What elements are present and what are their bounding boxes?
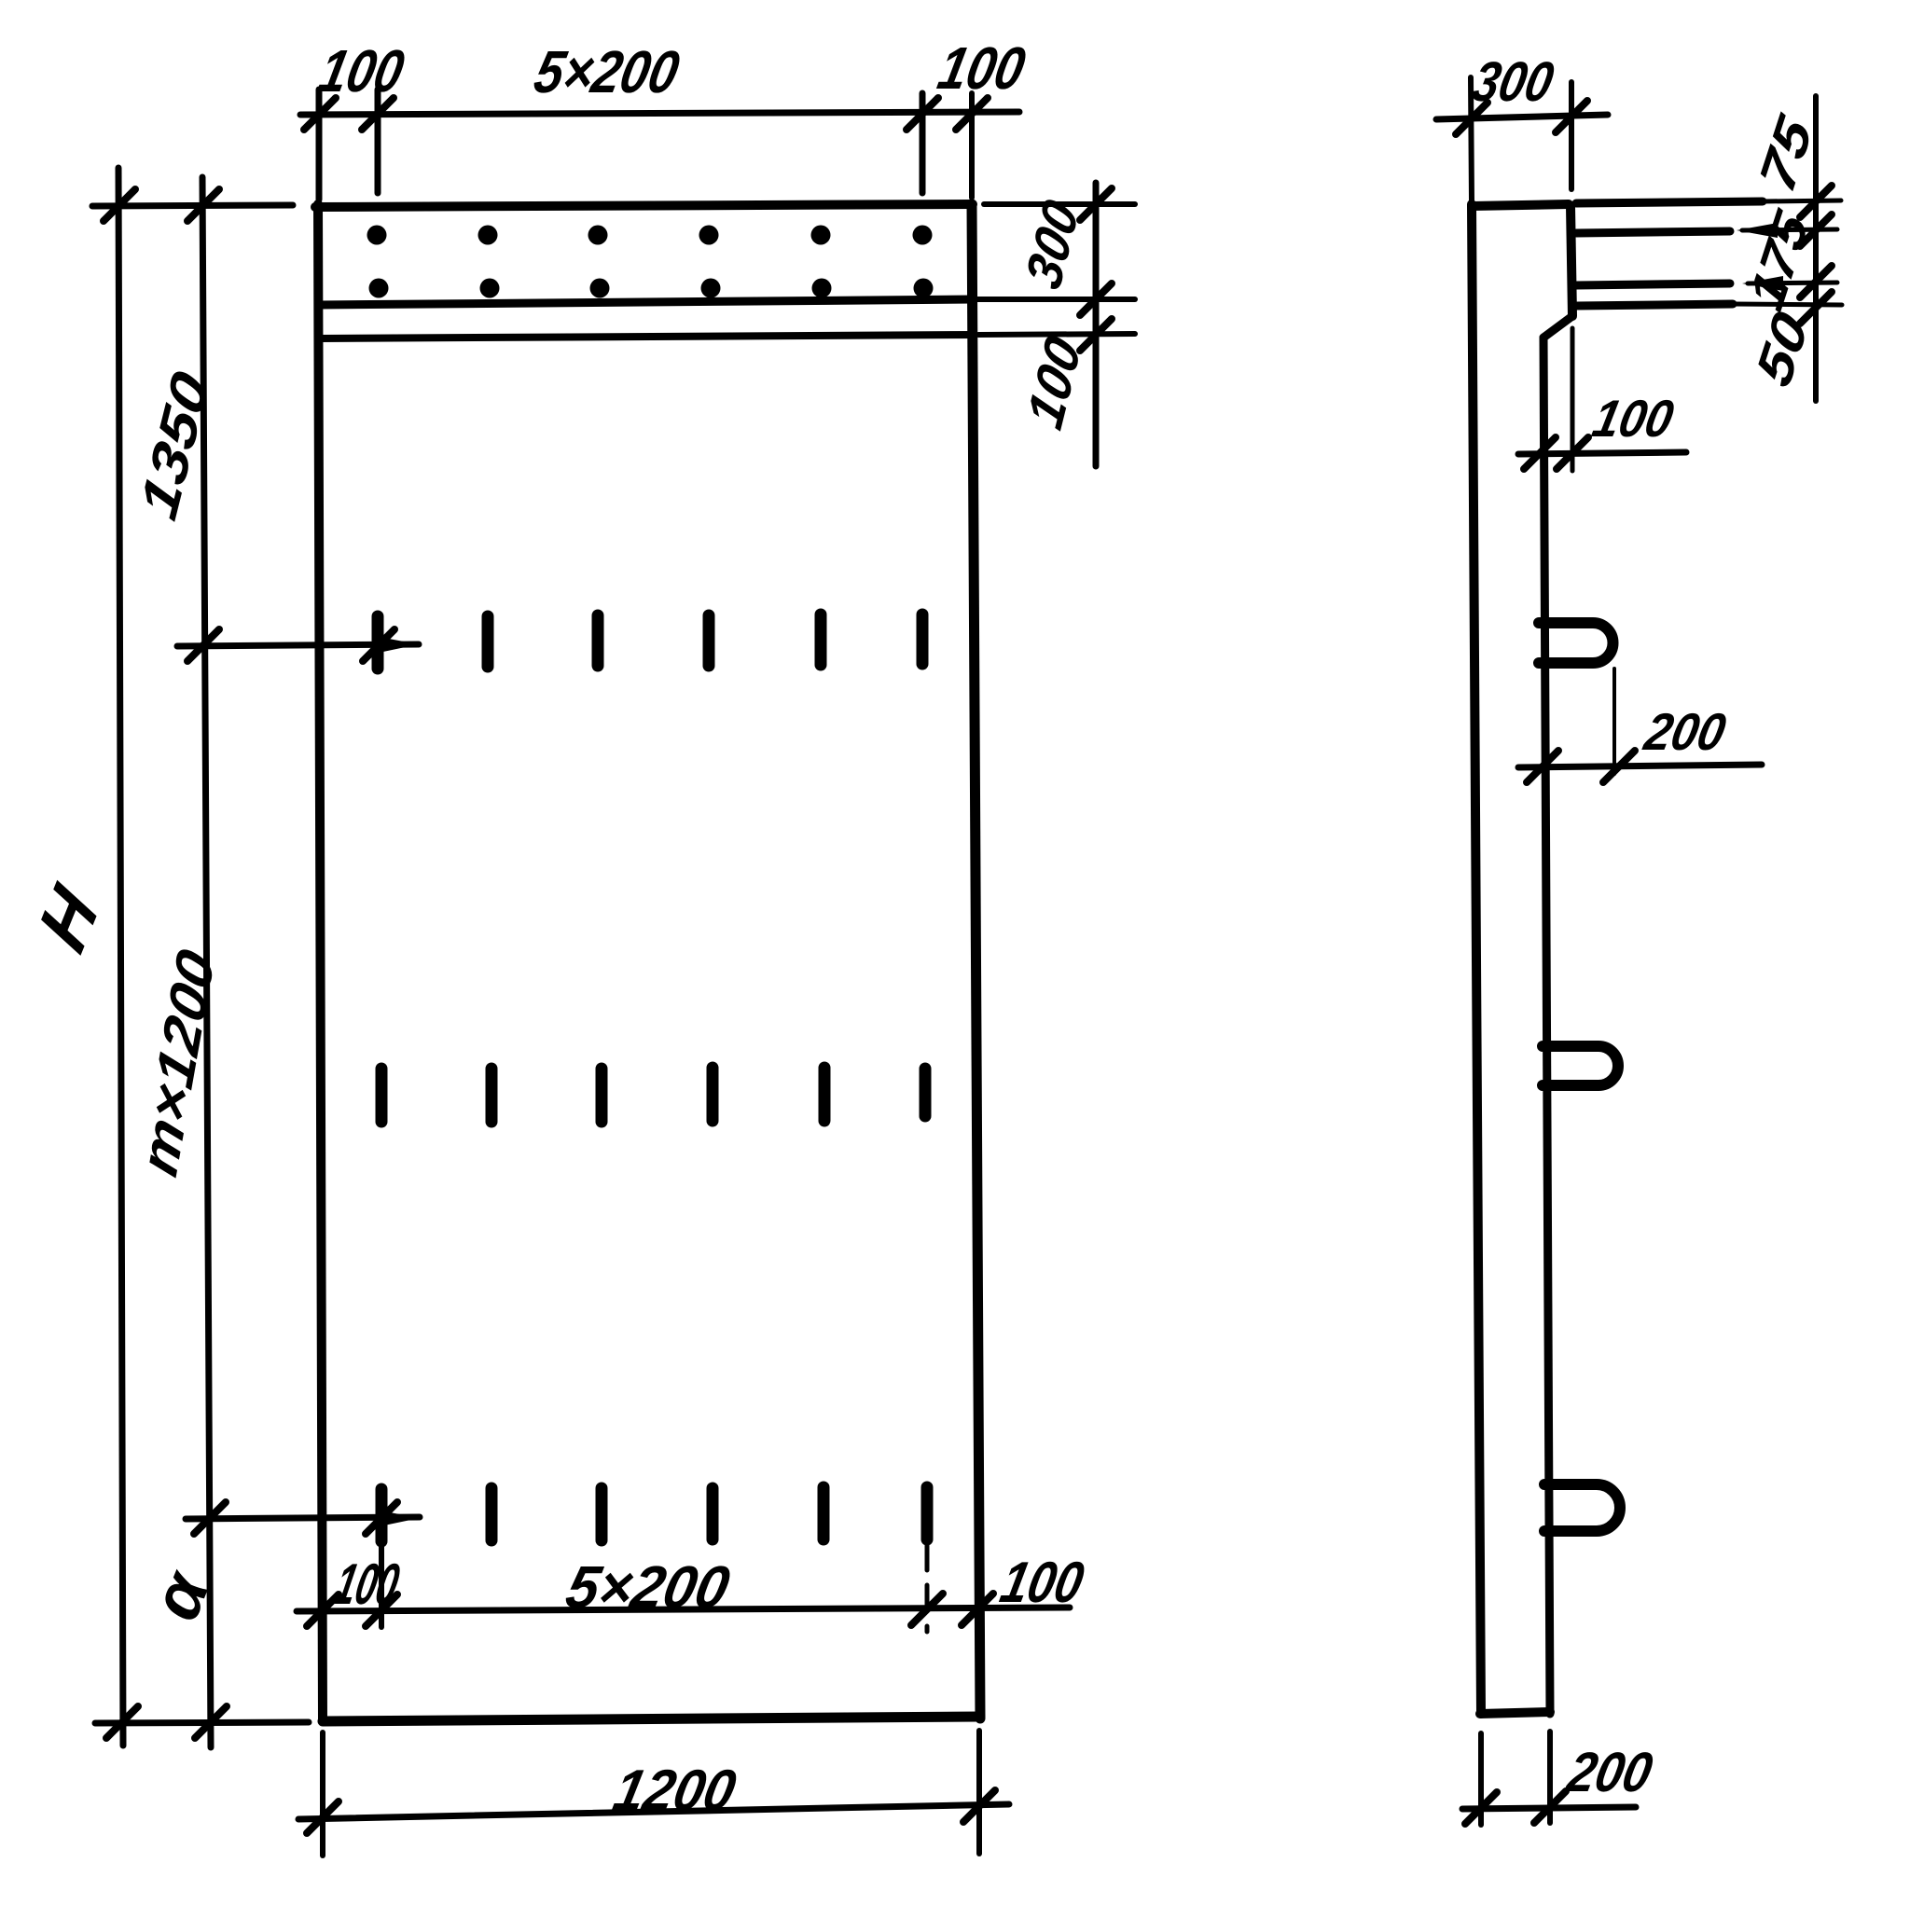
svg-text:100: 100 xyxy=(313,37,409,104)
svg-text:200: 200 xyxy=(1561,1741,1657,1803)
svg-text:100: 100 xyxy=(933,34,1031,102)
svg-text:300: 300 xyxy=(1467,50,1559,113)
svg-text:5×200: 5×200 xyxy=(529,38,685,105)
svg-text:1200: 1200 xyxy=(608,1759,741,1823)
svg-text:5×200: 5×200 xyxy=(561,1553,735,1621)
svg-text:100: 100 xyxy=(995,1551,1089,1615)
svg-text:100: 100 xyxy=(1587,390,1678,448)
svg-text:200: 200 xyxy=(1640,703,1731,761)
